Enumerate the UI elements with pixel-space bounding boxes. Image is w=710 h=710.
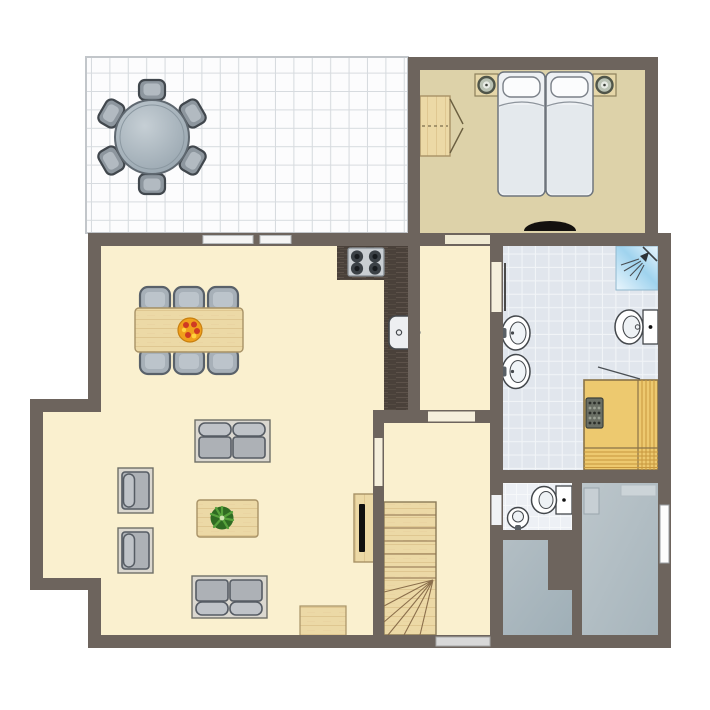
- tv: [359, 504, 365, 552]
- wall-left-mid: [30, 399, 43, 590]
- storage-doormat: [621, 485, 656, 496]
- sofa-top: [195, 420, 270, 462]
- wall-storage-chunk: [548, 530, 582, 590]
- double-bed: [498, 72, 593, 196]
- bedroom-door-opening: [445, 235, 490, 244]
- fruit-bowl: [178, 318, 202, 342]
- pillow: [551, 77, 588, 97]
- storage-cabinet: [584, 488, 599, 514]
- wall-left-upper: [88, 233, 101, 412]
- front-door: [436, 637, 490, 646]
- wc-door-opening: [492, 495, 502, 525]
- living-room-floor-bay: [43, 412, 101, 578]
- wall-right-lower: [658, 233, 671, 648]
- bathroom-toilet: [615, 310, 658, 344]
- sauna: [584, 367, 658, 470]
- floor-plan-canvas: [0, 0, 710, 710]
- terrace-chair: [139, 80, 165, 100]
- potted-plant: [211, 507, 234, 530]
- living-stairhall-door-opening: [375, 438, 383, 486]
- wall-bedroom-top: [408, 57, 658, 70]
- storage-window: [660, 505, 669, 563]
- wall-bedroom-right: [645, 57, 658, 246]
- bathroom-door-opening: [492, 262, 502, 312]
- hallway-floor: [420, 246, 490, 410]
- round-table: [115, 100, 189, 174]
- cooktop: [348, 248, 384, 276]
- terrace-window-1: [203, 236, 253, 244]
- floor-plan: [0, 0, 710, 710]
- coffee-table: [197, 500, 258, 537]
- terrace-window-2: [260, 236, 291, 244]
- lamp-icon: [597, 77, 613, 93]
- wall-bath-bottom: [490, 470, 671, 483]
- sauna-heater: [586, 398, 603, 428]
- sofa-bottom: [192, 576, 267, 618]
- wooden-doormat: [300, 606, 346, 636]
- tv-cabinet: [354, 494, 374, 562]
- lamp-icon: [479, 77, 495, 93]
- hall-door-opening: [428, 412, 475, 422]
- shower: [616, 246, 658, 290]
- staircase: [384, 502, 436, 635]
- pillow: [503, 77, 540, 97]
- armchair-top: [118, 468, 153, 513]
- armchair-bottom: [118, 528, 153, 573]
- terrace-chair: [139, 174, 165, 194]
- wall-top-horizontal: [88, 233, 658, 246]
